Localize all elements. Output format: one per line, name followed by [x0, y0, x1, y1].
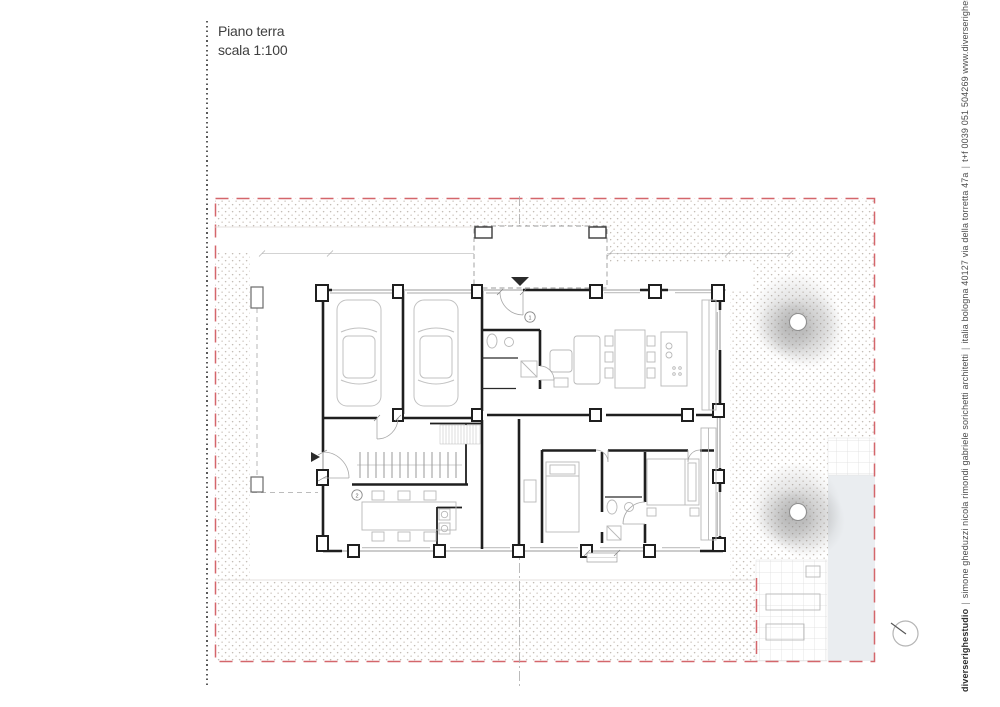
staircase: [311, 425, 480, 478]
drawing-sheet: Piano terra scala 1:100: [0, 0, 1000, 707]
studio-address: italia bologna 40127 via della torretta …: [960, 172, 970, 343]
building-interior-walls: [323, 291, 718, 549]
room-tag-2: 2: [355, 493, 358, 499]
footer-separator: |: [960, 347, 970, 350]
floor-plan-drawing: 1 2: [0, 0, 1000, 707]
living-furniture: [550, 300, 716, 410]
studio-footer: diverserighestudio|simone gheduzzi nicol…: [960, 0, 970, 692]
footer-separator: |: [960, 602, 970, 605]
north-symbol-icon: [891, 621, 918, 646]
entrance-canopy: [474, 226, 607, 288]
footer-separator: |: [960, 166, 970, 169]
studio-name: diverserighestudio: [960, 609, 970, 692]
level-marker-icon: [311, 452, 320, 462]
garage-cars: [337, 300, 458, 406]
dining-room-furniture: [362, 491, 456, 541]
door-swings: [323, 292, 700, 524]
bathroom-fixtures: [487, 334, 634, 540]
studio-contact: t+f 0039 051 504269 www.diverserighestud…: [960, 0, 970, 162]
bedroom-furniture: [524, 428, 716, 540]
room-tag-1: 1: [528, 315, 531, 321]
studio-architects: simone gheduzzi nicola rimondi gabriele …: [960, 354, 970, 598]
